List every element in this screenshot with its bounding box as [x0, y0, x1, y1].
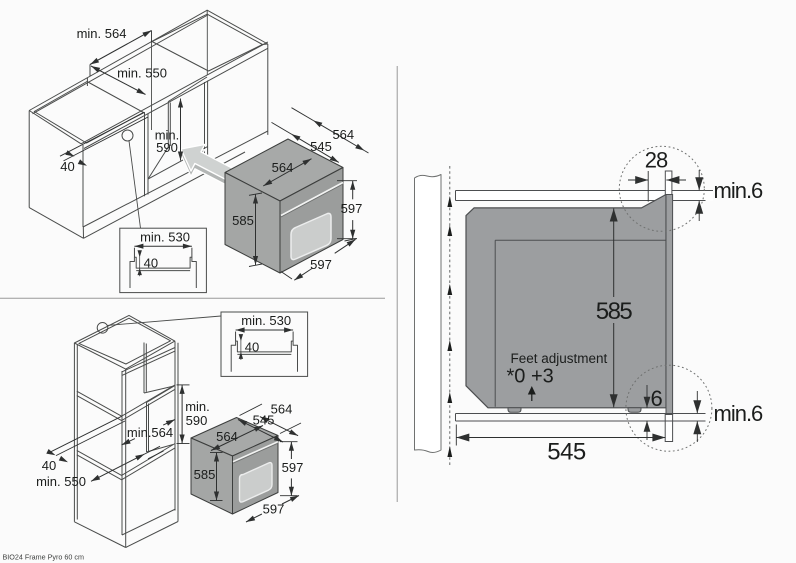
- svg-text:28: 28: [645, 148, 668, 173]
- svg-text:min. 530: min. 530: [241, 313, 291, 328]
- svg-text:597: 597: [310, 257, 332, 272]
- svg-text:min.6: min.6: [714, 401, 764, 426]
- svg-text:585: 585: [194, 467, 216, 482]
- svg-text:40: 40: [60, 159, 74, 174]
- svg-text:6: 6: [651, 386, 663, 411]
- svg-text:min.6: min.6: [714, 178, 764, 203]
- svg-text:564: 564: [272, 160, 294, 175]
- svg-text:40: 40: [42, 458, 56, 473]
- svg-text:545: 545: [253, 413, 275, 428]
- svg-text:*0 +3: *0 +3: [507, 366, 554, 388]
- svg-text:min. 550: min. 550: [117, 66, 167, 81]
- svg-text:597: 597: [263, 502, 285, 517]
- svg-text:min.: min.: [185, 399, 210, 414]
- svg-text:597: 597: [341, 201, 363, 216]
- svg-text:585: 585: [596, 298, 633, 325]
- svg-text:min. 564: min. 564: [77, 26, 127, 41]
- svg-text:40: 40: [245, 340, 259, 355]
- svg-text:Feet adjustment: Feet adjustment: [511, 351, 608, 366]
- svg-text:min. 550: min. 550: [36, 474, 86, 489]
- svg-text:min. 530: min. 530: [140, 229, 190, 244]
- svg-text:585: 585: [232, 213, 254, 228]
- svg-text:564: 564: [216, 429, 238, 444]
- svg-text:BIO24 Frame Pyro 60 cm: BIO24 Frame Pyro 60 cm: [3, 553, 84, 562]
- svg-text:597: 597: [282, 460, 304, 475]
- svg-text:590: 590: [156, 140, 178, 155]
- svg-text:545: 545: [547, 439, 586, 466]
- svg-text:545: 545: [310, 139, 332, 154]
- svg-text:min.564: min.564: [127, 425, 173, 440]
- svg-text:590: 590: [186, 413, 208, 428]
- svg-text:564: 564: [332, 127, 354, 142]
- svg-text:40: 40: [144, 256, 158, 271]
